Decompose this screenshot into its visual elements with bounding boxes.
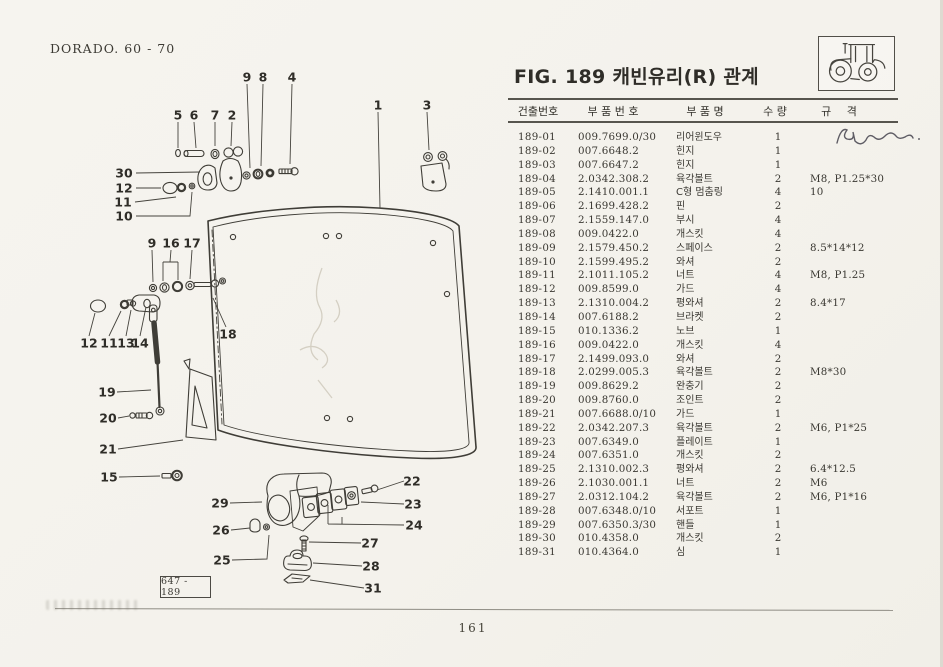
cell-id: 189-17 — [518, 353, 556, 367]
cell-name: C형 멈춤링 — [676, 186, 723, 200]
table-row: 189-272.0312.104.2육각볼트2M6, P1*16 — [508, 491, 906, 505]
cell-spec: 10 — [810, 186, 824, 200]
callout-21: 21 — [99, 442, 116, 457]
cell-part_no: 2.0299.005.3 — [578, 366, 649, 380]
cell-part_no: 2.0342.207.3 — [578, 422, 649, 436]
table-row: 189-14007.6188.2브라켓2 — [508, 311, 906, 325]
cell-part_no: 2.1579.450.2 — [578, 242, 649, 256]
cell-qty: 2 — [760, 380, 796, 394]
table-row: 189-24007.6351.0개스킷2 — [508, 449, 906, 463]
figure-title: FIG. 189 캐빈유리(R) 관계 — [514, 62, 759, 89]
callout-22: 22 — [403, 474, 420, 489]
cell-qty: 4 — [760, 214, 796, 228]
pen-scribble-icon — [833, 121, 925, 157]
cell-part_no: 009.0422.0 — [578, 339, 639, 353]
bleed-through-sketch — [300, 268, 340, 398]
callout-9: 9 — [148, 236, 157, 251]
col-header-part-number: 부 품 번 호 — [563, 103, 663, 119]
callout-12: 12 — [115, 181, 132, 196]
callout-5: 5 — [174, 108, 183, 123]
cell-qty: 4 — [760, 269, 796, 283]
cell-part_no: 007.6348.0/10 — [578, 505, 656, 519]
cell-id: 189-03 — [518, 159, 556, 173]
table-row: 189-252.1310.002.3평와셔26.4*12.5 — [508, 463, 906, 477]
cell-id: 189-12 — [518, 283, 556, 297]
exploded-diagram: 9845672133012111091617121113141819202115… — [40, 50, 500, 625]
cell-qty: 2 — [760, 394, 796, 408]
table-row: 189-052.1410.001.1C형 멈춤링410 — [508, 186, 906, 200]
cell-name: 노브 — [676, 325, 694, 339]
callout-27: 27 — [361, 536, 378, 551]
table-row: 189-092.1579.450.2스페이스28.5*14*12 — [508, 242, 906, 256]
cell-qty: 4 — [760, 228, 796, 242]
cell-part_no: 2.1030.001.1 — [578, 477, 649, 491]
cell-id: 189-29 — [518, 519, 556, 533]
table-row: 189-072.1559.147.0부시4 — [508, 214, 906, 228]
table-header-row: 건출번호 부 품 번 호 부 품 명 수 량 규 격 — [508, 103, 898, 120]
cell-id: 189-13 — [518, 297, 556, 311]
cell-name: 육각볼트 — [676, 173, 713, 187]
cell-part_no: 2.0312.104.2 — [578, 491, 649, 505]
cell-spec: M6, P1*16 — [810, 491, 867, 505]
col-header-part-name: 부 품 명 — [655, 103, 755, 119]
cell-name: 서포트 — [676, 505, 704, 519]
cell-part_no: 2.0342.308.2 — [578, 173, 649, 187]
cell-qty: 2 — [760, 532, 796, 546]
cell-id: 189-21 — [518, 408, 556, 422]
cell-spec: M6, P1*25 — [810, 422, 867, 436]
cell-spec: 8.5*14*12 — [810, 242, 865, 256]
table-row: 189-03007.6647.2힌지1 — [508, 159, 906, 173]
callout-18: 18 — [219, 327, 236, 342]
table-row: 189-15010.1336.2노브1 — [508, 325, 906, 339]
table-row: 189-222.0342.207.3육각볼트2M6, P1*25 — [508, 422, 906, 436]
cell-id: 189-07 — [518, 214, 556, 228]
cell-name: 평와셔 — [676, 463, 704, 477]
cell-qty: 1 — [760, 408, 796, 422]
cell-id: 189-11 — [518, 269, 556, 283]
cell-qty: 2 — [760, 311, 796, 325]
latch-handle-parts — [250, 473, 378, 583]
cell-id: 189-23 — [518, 436, 556, 450]
right-hinge-part — [421, 152, 449, 191]
cell-id: 189-02 — [518, 145, 556, 159]
cell-name: 브라켓 — [676, 311, 704, 325]
cell-id: 189-08 — [518, 228, 556, 242]
table-row: 189-262.1030.001.1너트2M6 — [508, 477, 906, 491]
cell-qty: 1 — [760, 436, 796, 450]
cell-id: 189-31 — [518, 546, 556, 560]
table-row: 189-042.0342.308.2육각볼트2M8, P1.25*30 — [508, 173, 906, 187]
table-row: 189-19009.8629.2완충기2 — [508, 380, 906, 394]
cell-qty: 4 — [760, 283, 796, 297]
cell-part_no: 2.1499.093.0 — [578, 353, 649, 367]
cell-qty: 2 — [760, 242, 796, 256]
table-row: 189-23007.6349.0플레이트1 — [508, 436, 906, 450]
cell-qty: 1 — [760, 519, 796, 533]
callout-17: 17 — [183, 236, 200, 251]
table-row: 189-172.1499.093.0와셔2 — [508, 353, 906, 367]
cell-qty: 2 — [760, 200, 796, 214]
callout-20: 20 — [99, 411, 117, 426]
cell-part_no: 2.1011.105.2 — [578, 269, 649, 283]
cell-qty: 2 — [760, 422, 796, 436]
cell-name: 플레이트 — [676, 436, 713, 450]
table-row: 189-21007.6688.0/10가드1 — [508, 408, 906, 422]
table-row: 189-16009.0422.0개스킷4 — [508, 339, 906, 353]
cell-id: 189-20 — [518, 394, 556, 408]
tractor-icon — [819, 37, 893, 89]
callout-24: 24 — [405, 518, 423, 533]
cell-qty: 2 — [760, 477, 796, 491]
callout-25: 25 — [213, 553, 230, 568]
cell-id: 189-16 — [518, 339, 556, 353]
callout-28: 28 — [362, 559, 379, 574]
cell-part_no: 007.6188.2 — [578, 311, 639, 325]
cell-name: 와셔 — [676, 256, 694, 270]
diagram-ref-label: 647 - 189 — [160, 576, 211, 598]
cell-qty: 2 — [760, 366, 796, 380]
cell-spec: 6.4*12.5 — [810, 463, 856, 477]
upper-hinge-parts — [163, 147, 298, 194]
cell-spec: M8, P1.25*30 — [810, 173, 884, 187]
table-row: 189-182.0299.005.3육각볼트2M8*30 — [508, 366, 906, 380]
cell-part_no: 2.1599.495.2 — [578, 256, 649, 270]
cell-id: 189-05 — [518, 186, 556, 200]
table-row: 189-062.1699.428.2핀2 — [508, 200, 906, 214]
callout-30: 30 — [115, 166, 133, 181]
cell-id: 189-09 — [518, 242, 556, 256]
cell-name: 힌지 — [676, 159, 694, 173]
cell-id: 189-30 — [518, 532, 556, 546]
col-header-index: 건출번호 — [510, 103, 566, 119]
col-header-quantity: 수 량 — [745, 103, 805, 119]
parts-table-body: 189-01009.7699.0/30리어윈도우1189-02007.6648.… — [508, 131, 906, 560]
cell-name: 와셔 — [676, 353, 694, 367]
cell-qty: 2 — [760, 297, 796, 311]
cell-qty: 2 — [760, 173, 796, 187]
cell-part_no: 010.1336.2 — [578, 325, 639, 339]
cell-part_no: 010.4358.0 — [578, 532, 639, 546]
cell-name: 개스킷 — [676, 449, 704, 463]
cell-part_no: 007.6351.0 — [578, 449, 639, 463]
table-row: 189-132.1310.004.2평와셔28.4*17 — [508, 297, 906, 311]
cell-name: 완충기 — [676, 380, 704, 394]
catalog-page: DORADO. 60 - 70 — [0, 0, 943, 667]
cell-part_no: 009.0422.0 — [578, 228, 639, 242]
callout-2: 2 — [228, 108, 237, 123]
cell-id: 189-14 — [518, 311, 556, 325]
cell-qty: 1 — [760, 546, 796, 560]
callout-15: 15 — [100, 470, 117, 485]
cell-id: 189-04 — [518, 173, 556, 187]
cell-id: 189-26 — [518, 477, 556, 491]
cell-part_no: 2.1310.002.3 — [578, 463, 649, 477]
callout-9: 9 — [243, 70, 252, 85]
cell-part_no: 007.6648.2 — [578, 145, 639, 159]
table-row: 189-102.1599.495.2와셔2 — [508, 256, 906, 270]
cell-spec: M8, P1.25 — [810, 269, 865, 283]
cell-id: 189-15 — [518, 325, 556, 339]
cell-qty: 1 — [760, 159, 796, 173]
callout-26: 26 — [212, 523, 230, 538]
cell-part_no: 009.8629.2 — [578, 380, 639, 394]
callout-31: 31 — [364, 581, 381, 596]
cell-name: 스페이스 — [676, 242, 713, 256]
cell-name: 리어윈도우 — [676, 131, 722, 145]
table-row: 189-20009.8760.0조인트2 — [508, 394, 906, 408]
cell-name: 핸들 — [676, 519, 694, 533]
cell-id: 189-28 — [518, 505, 556, 519]
cell-spec: M8*30 — [810, 366, 846, 380]
cell-name: 너트 — [676, 269, 694, 283]
cell-id: 189-06 — [518, 200, 556, 214]
cell-id: 189-01 — [518, 131, 556, 145]
cell-name: 개스킷 — [676, 228, 704, 242]
cell-part_no: 009.7699.0/30 — [578, 131, 656, 145]
cell-part_no: 007.6350.3/30 — [578, 519, 656, 533]
cell-name: 육각볼트 — [676, 491, 713, 505]
tractor-thumbnail-box — [818, 36, 895, 91]
cell-name: 개스킷 — [676, 339, 704, 353]
cell-part_no: 2.1410.001.1 — [578, 186, 649, 200]
callout-16: 16 — [162, 236, 180, 251]
callout-23: 23 — [404, 497, 421, 512]
cell-qty: 2 — [760, 491, 796, 505]
table-row: 189-29007.6350.3/30핸들1 — [508, 519, 906, 533]
cell-id: 189-25 — [518, 463, 556, 477]
cell-name: 평와셔 — [676, 297, 704, 311]
table-row: 189-28007.6348.0/10서포트1 — [508, 505, 906, 519]
cell-name: 핀 — [676, 200, 685, 214]
cell-spec: M6 — [810, 477, 828, 491]
cell-part_no: 2.1699.428.2 — [578, 200, 649, 214]
cell-qty: 2 — [760, 256, 796, 270]
callout-29: 29 — [211, 496, 228, 511]
cell-qty: 1 — [760, 145, 796, 159]
callout-1: 1 — [374, 98, 383, 113]
cell-id: 189-22 — [518, 422, 556, 436]
callout-12: 12 — [80, 336, 97, 351]
cell-part_no: 009.8599.0 — [578, 283, 639, 297]
cell-name: 개스킷 — [676, 532, 704, 546]
cell-qty: 4 — [760, 186, 796, 200]
table-row: 189-30010.4358.0개스킷2 — [508, 532, 906, 546]
callout-8: 8 — [259, 70, 268, 85]
cell-id: 189-10 — [518, 256, 556, 270]
cell-id: 189-27 — [518, 491, 556, 505]
cell-name: 힌지 — [676, 145, 694, 159]
cell-part_no: 007.6349.0 — [578, 436, 639, 450]
cell-id: 189-18 — [518, 366, 556, 380]
cell-qty: 2 — [760, 353, 796, 367]
cell-name: 너트 — [676, 477, 694, 491]
cell-name: 가드 — [676, 408, 694, 422]
cell-qty: 4 — [760, 339, 796, 353]
cell-part_no: 007.6647.2 — [578, 159, 639, 173]
table-row: 189-08009.0422.0개스킷4 — [508, 228, 906, 242]
cell-qty: 1 — [760, 505, 796, 519]
cell-qty: 1 — [760, 325, 796, 339]
table-row: 189-12009.8599.0가드4 — [508, 283, 906, 297]
cell-name: 육각볼트 — [676, 422, 713, 436]
cell-part_no: 010.4364.0 — [578, 546, 639, 560]
callout-7: 7 — [211, 108, 220, 123]
callout-11: 11 — [100, 336, 117, 351]
callout-3: 3 — [423, 98, 432, 113]
callout-11: 11 — [114, 195, 131, 210]
cell-part_no: 2.1310.004.2 — [578, 297, 649, 311]
callout-19: 19 — [98, 385, 115, 400]
callout-6: 6 — [190, 108, 199, 123]
callout-14: 14 — [131, 336, 149, 351]
cell-name: 조인트 — [676, 394, 704, 408]
cell-part_no: 007.6688.0/10 — [578, 408, 656, 422]
callout-4: 4 — [288, 70, 297, 85]
cell-part_no: 2.1559.147.0 — [578, 214, 649, 228]
cell-qty: 2 — [760, 449, 796, 463]
cell-id: 189-19 — [518, 380, 556, 394]
table-rule-top — [508, 98, 898, 100]
cell-name: 육각볼트 — [676, 366, 713, 380]
cell-name: 부시 — [676, 214, 694, 228]
cell-qty: 1 — [760, 131, 796, 145]
col-header-spec: 규 격 — [799, 103, 879, 119]
cell-name: 가드 — [676, 283, 694, 297]
cell-name: 심 — [676, 546, 685, 560]
cell-id: 189-24 — [518, 449, 556, 463]
table-row: 189-31010.4364.0심1 — [508, 546, 906, 560]
cell-qty: 2 — [760, 463, 796, 477]
cell-part_no: 009.8760.0 — [578, 394, 639, 408]
table-row: 189-112.1011.105.2너트4M8, P1.25 — [508, 269, 906, 283]
callout-10: 10 — [115, 209, 133, 224]
page-number: 161 — [451, 621, 495, 635]
cell-spec: 8.4*17 — [810, 297, 846, 311]
rear-window-glass — [208, 207, 476, 459]
